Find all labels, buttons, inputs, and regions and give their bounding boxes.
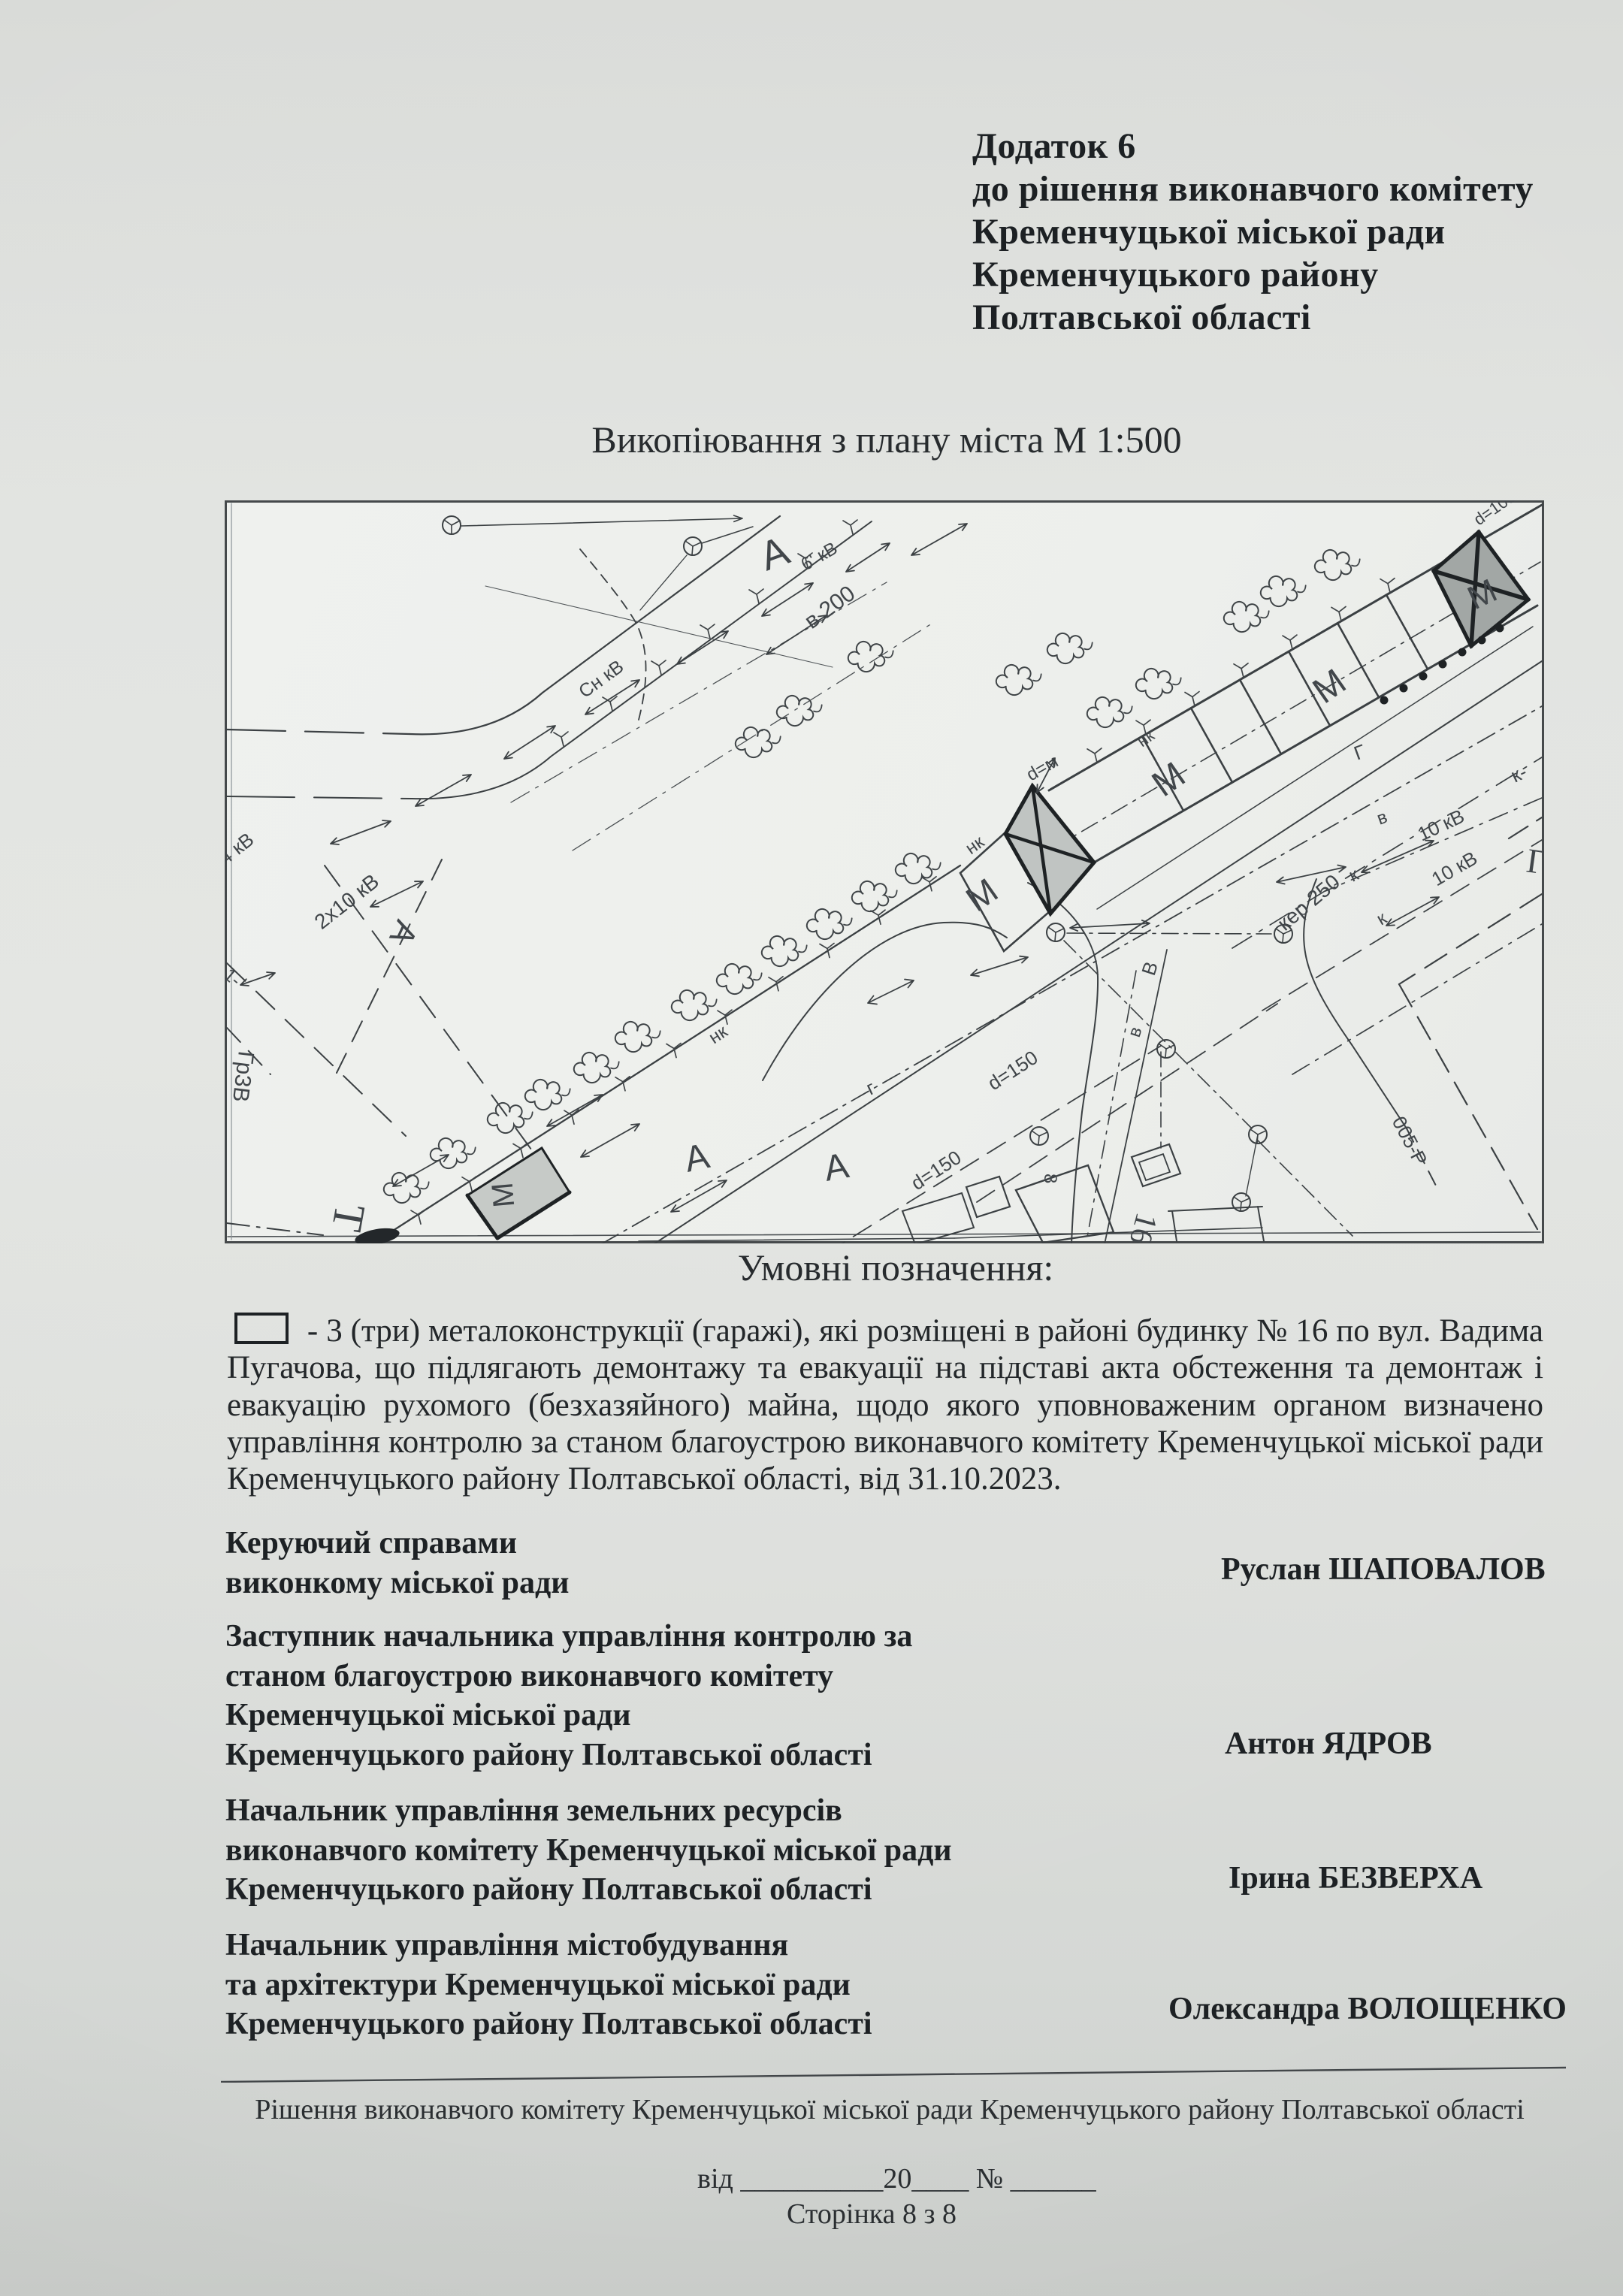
svg-text:г: г xyxy=(863,1076,878,1099)
svg-text:к-: к- xyxy=(1507,760,1531,787)
svg-text:10 кВ: 10 кВ xyxy=(1414,805,1467,846)
svg-text:М: М xyxy=(1145,755,1192,805)
svg-text:2х10 кВ: 2х10 кВ xyxy=(310,869,383,934)
svg-text:А: А xyxy=(754,528,795,580)
svg-text:d=100: d=100 xyxy=(1470,500,1519,529)
svg-text:d=150: d=150 xyxy=(907,1146,966,1195)
svg-text:Г: Г xyxy=(1525,841,1544,881)
svg-text:А: А xyxy=(382,915,425,951)
svg-text:d=150: d=150 xyxy=(984,1046,1042,1095)
svg-text:к: к xyxy=(1374,908,1391,929)
svg-text:Гр3В: Гр3В xyxy=(228,1050,258,1103)
svg-text:005-Р: 005-Р xyxy=(1388,1113,1432,1169)
svg-text:М: М xyxy=(486,1181,521,1209)
svg-text:В: В xyxy=(1137,959,1162,978)
svg-text:А: А xyxy=(681,1136,712,1180)
svg-text:10 кВ: 10 кВ xyxy=(1428,847,1481,890)
svg-text:в: в xyxy=(1124,1024,1147,1039)
svg-text:кер 250: кер 250 xyxy=(1273,870,1344,935)
svg-text:М: М xyxy=(959,871,1005,920)
svg-text:6' кВ: 6' кВ xyxy=(798,538,842,575)
svg-text:Т: Т xyxy=(322,1201,375,1235)
svg-text:к: к xyxy=(1346,864,1362,886)
svg-text:4 кВ: 4 кВ xyxy=(225,828,258,869)
svg-text:16: 16 xyxy=(1122,1209,1163,1243)
svg-text:нк: нк xyxy=(706,1021,732,1048)
svg-text:8: 8 xyxy=(1040,1174,1060,1183)
svg-text:d=м: d=м xyxy=(1023,751,1062,785)
svg-text:Г: Г xyxy=(1351,740,1369,765)
svg-text:М: М xyxy=(1306,662,1353,711)
svg-text:А: А xyxy=(821,1146,852,1189)
svg-text:1-: 1- xyxy=(225,965,245,990)
svg-text:нк: нк xyxy=(962,832,988,859)
svg-text:в: в xyxy=(1374,807,1390,829)
